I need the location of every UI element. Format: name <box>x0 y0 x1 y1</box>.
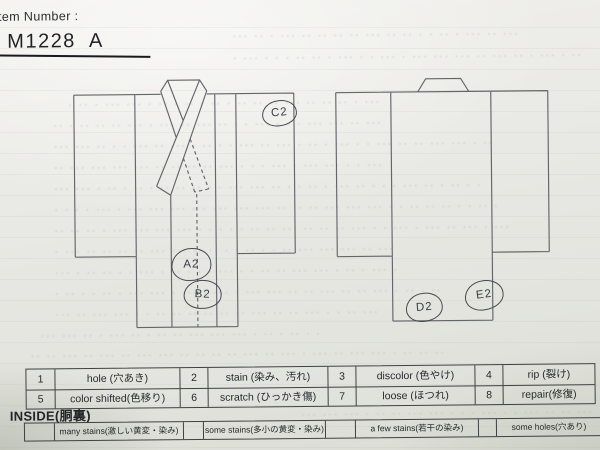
defect-code: 1 <box>26 369 54 389</box>
defect-label: repair(修復) <box>503 384 595 404</box>
defect-code: 7 <box>328 386 356 406</box>
inspection-sheet-photo: ▪▪▪ ▪▪ ▪ ▪▪▪ ▪▪ ▪▪ ▪▪ ▪▪ ▪▪▪ ▪▪ ▪▪ ▪ ▪ ▪… <box>0 0 600 450</box>
defect-label: stain (染み、汚れ) <box>207 367 327 388</box>
defect-label: scratch (ひっかき傷) <box>208 386 328 407</box>
defect-label: discolor (色やけ) <box>355 365 474 386</box>
defect-code: 2 <box>179 368 207 388</box>
inside-option-label: some holes(穴あり) <box>496 418 600 436</box>
inside-checkbox-3 <box>325 420 355 437</box>
inside-option-label: some stains(多小の黄変・染み) <box>203 421 325 439</box>
defect-code: 3 <box>327 366 355 386</box>
inside-option-label: many stains(激しい黄変・染み) <box>54 422 183 440</box>
inside-checkbox-2 <box>183 422 203 439</box>
inside-option-label: a few stains(若干の染み) <box>355 419 478 437</box>
defect-label: hole (穴あき) <box>54 368 179 389</box>
defect-legend-table: 1 hole (穴あき) 2 stain (染み、汚れ) 3 discolor … <box>25 363 595 409</box>
front-collar <box>156 80 208 195</box>
inside-checkbox-1 <box>25 423 54 440</box>
defect-label: loose (ほつれ) <box>356 385 475 406</box>
defect-label: rip (裂け) <box>502 364 594 384</box>
defect-code: 8 <box>475 385 503 405</box>
defect-code: 4 <box>474 365 502 385</box>
defect-code: 6 <box>180 387 208 407</box>
inside-checkbox-4 <box>478 419 496 436</box>
sheet-content: ▪▪▪ ▪▪ ▪ ▪▪▪ ▪▪ ▪▪ ▪▪ ▪▪ ▪▪▪ ▪▪ ▪▪ ▪ ▪ ▪… <box>0 0 600 450</box>
back-kimono-diagram <box>336 78 550 322</box>
